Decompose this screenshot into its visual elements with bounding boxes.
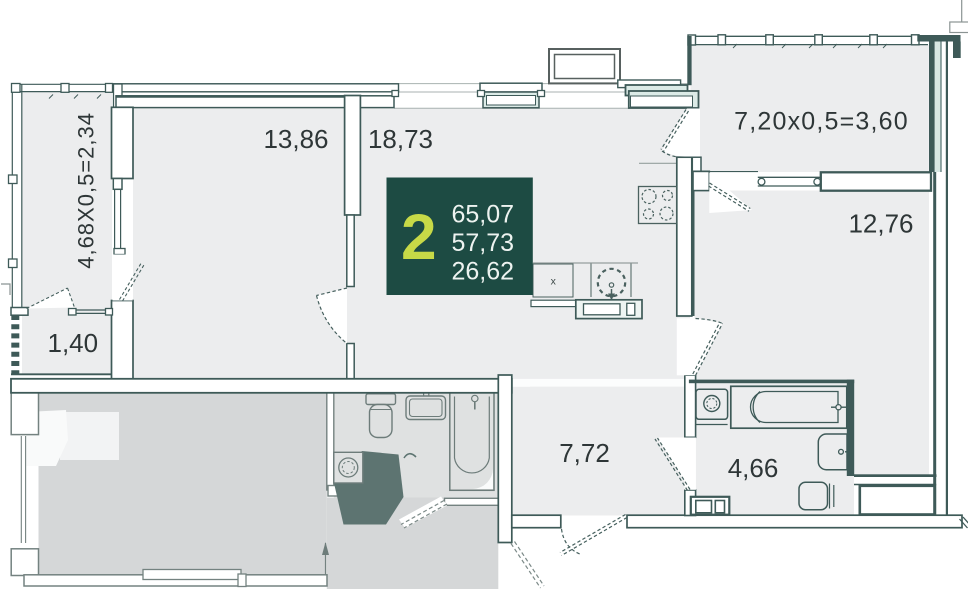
svg-text:26,62: 26,62	[452, 258, 515, 286]
svg-text:7,72: 7,72	[559, 438, 610, 468]
svg-text:4,66: 4,66	[728, 453, 779, 483]
svg-text:65,07: 65,07	[452, 201, 515, 229]
svg-text:2: 2	[401, 201, 437, 273]
svg-text:7,20x0,5=3,60: 7,20x0,5=3,60	[734, 108, 909, 136]
svg-text:12,76: 12,76	[848, 209, 913, 239]
svg-text:18,73: 18,73	[368, 124, 433, 154]
svg-text:57,73: 57,73	[452, 229, 515, 257]
svg-text:x: x	[551, 276, 557, 288]
svg-text:13,86: 13,86	[263, 124, 328, 154]
svg-text:4,68X0,5=2,34: 4,68X0,5=2,34	[74, 112, 99, 269]
svg-text:1,40: 1,40	[47, 328, 98, 358]
